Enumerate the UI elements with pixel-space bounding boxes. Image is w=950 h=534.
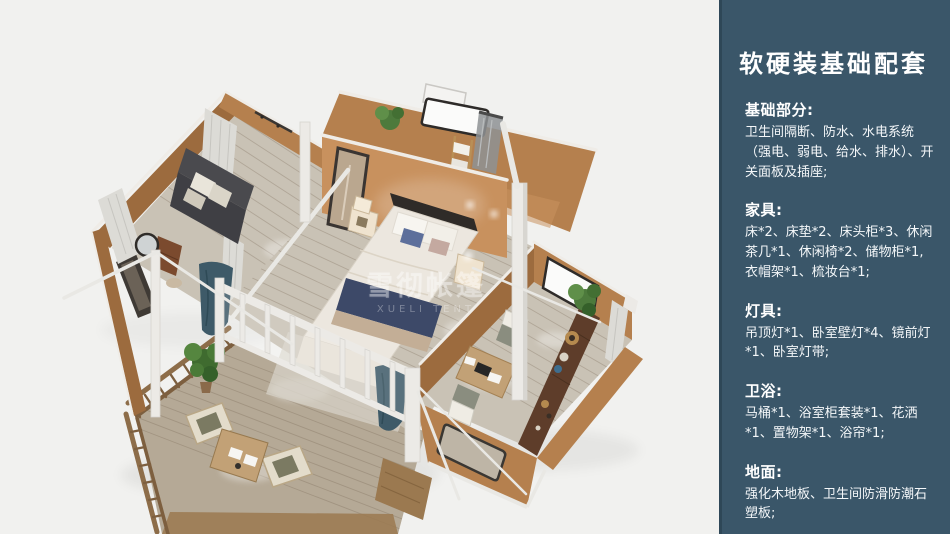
floorplan-render: 雪彻帐篷 XUELI TENT [0, 0, 719, 534]
sidebar-content: 软硬装基础配套 基础部分: 卫生间隔断、防水、水电系统（强电、弱电、给水、排水）… [719, 0, 950, 524]
glass-wall-post [215, 278, 224, 362]
section-body: 强化木地板、卫生间防滑防潮石塑板; [745, 485, 936, 525]
corner-post [405, 368, 420, 462]
floorplan-svg [0, 0, 719, 534]
wall-lamp [467, 202, 474, 209]
slide: 雪彻帐篷 XUELI TENT 软硬装基础配套 基础部分: 卫生间隔断、防水、水… [0, 0, 950, 534]
section-body: 卫生间隔断、防水、水电系统（强电、弱电、给水、排水）、开关面板及插座; [745, 123, 936, 182]
sidebar: 软硬装基础配套 基础部分: 卫生间隔断、防水、水电系统（强电、弱电、给水、排水）… [719, 0, 950, 534]
section-body: 床*2、床垫*2、床头柜*3、休闲茶几*1、休闲椅*2、储物柜*1, 衣帽架*1… [745, 223, 936, 282]
sidebar-title: 软硬装基础配套 [739, 44, 936, 79]
porch-post [151, 250, 160, 417]
wall-lamp [491, 211, 498, 218]
section-heading: 卫浴: [745, 380, 936, 401]
section-heading: 家具: [745, 199, 936, 220]
section-flooring: 地面: 强化木地板、卫生间防滑防潮石塑板; [745, 461, 936, 525]
stool [166, 278, 182, 288]
section-heading: 地面: [745, 461, 936, 482]
section-furniture: 家具: 床*2、床垫*2、床头柜*3、休闲茶几*1、休闲椅*2、储物柜*1, 衣… [745, 199, 936, 282]
section-body: 马桶*1、浴室柜套装*1、花洒*1、置物架*1、浴帘*1; [745, 404, 936, 444]
section-lighting: 灯具: 吊顶灯*1、卧室壁灯*4、镜前灯*1、卧室灯带; [745, 300, 936, 364]
section-basics: 基础部分: 卫生间隔断、防水、水电系统（强电、弱电、给水、排水）、开关面板及插座… [745, 99, 936, 182]
section-heading: 基础部分: [745, 99, 936, 120]
section-body: 吊顶灯*1、卧室壁灯*4、镜前灯*1、卧室灯带; [745, 324, 936, 364]
section-bathroom: 卫浴: 马桶*1、浴室柜套装*1、花洒*1、置物架*1、浴帘*1; [745, 380, 936, 444]
section-heading: 灯具: [745, 300, 936, 321]
